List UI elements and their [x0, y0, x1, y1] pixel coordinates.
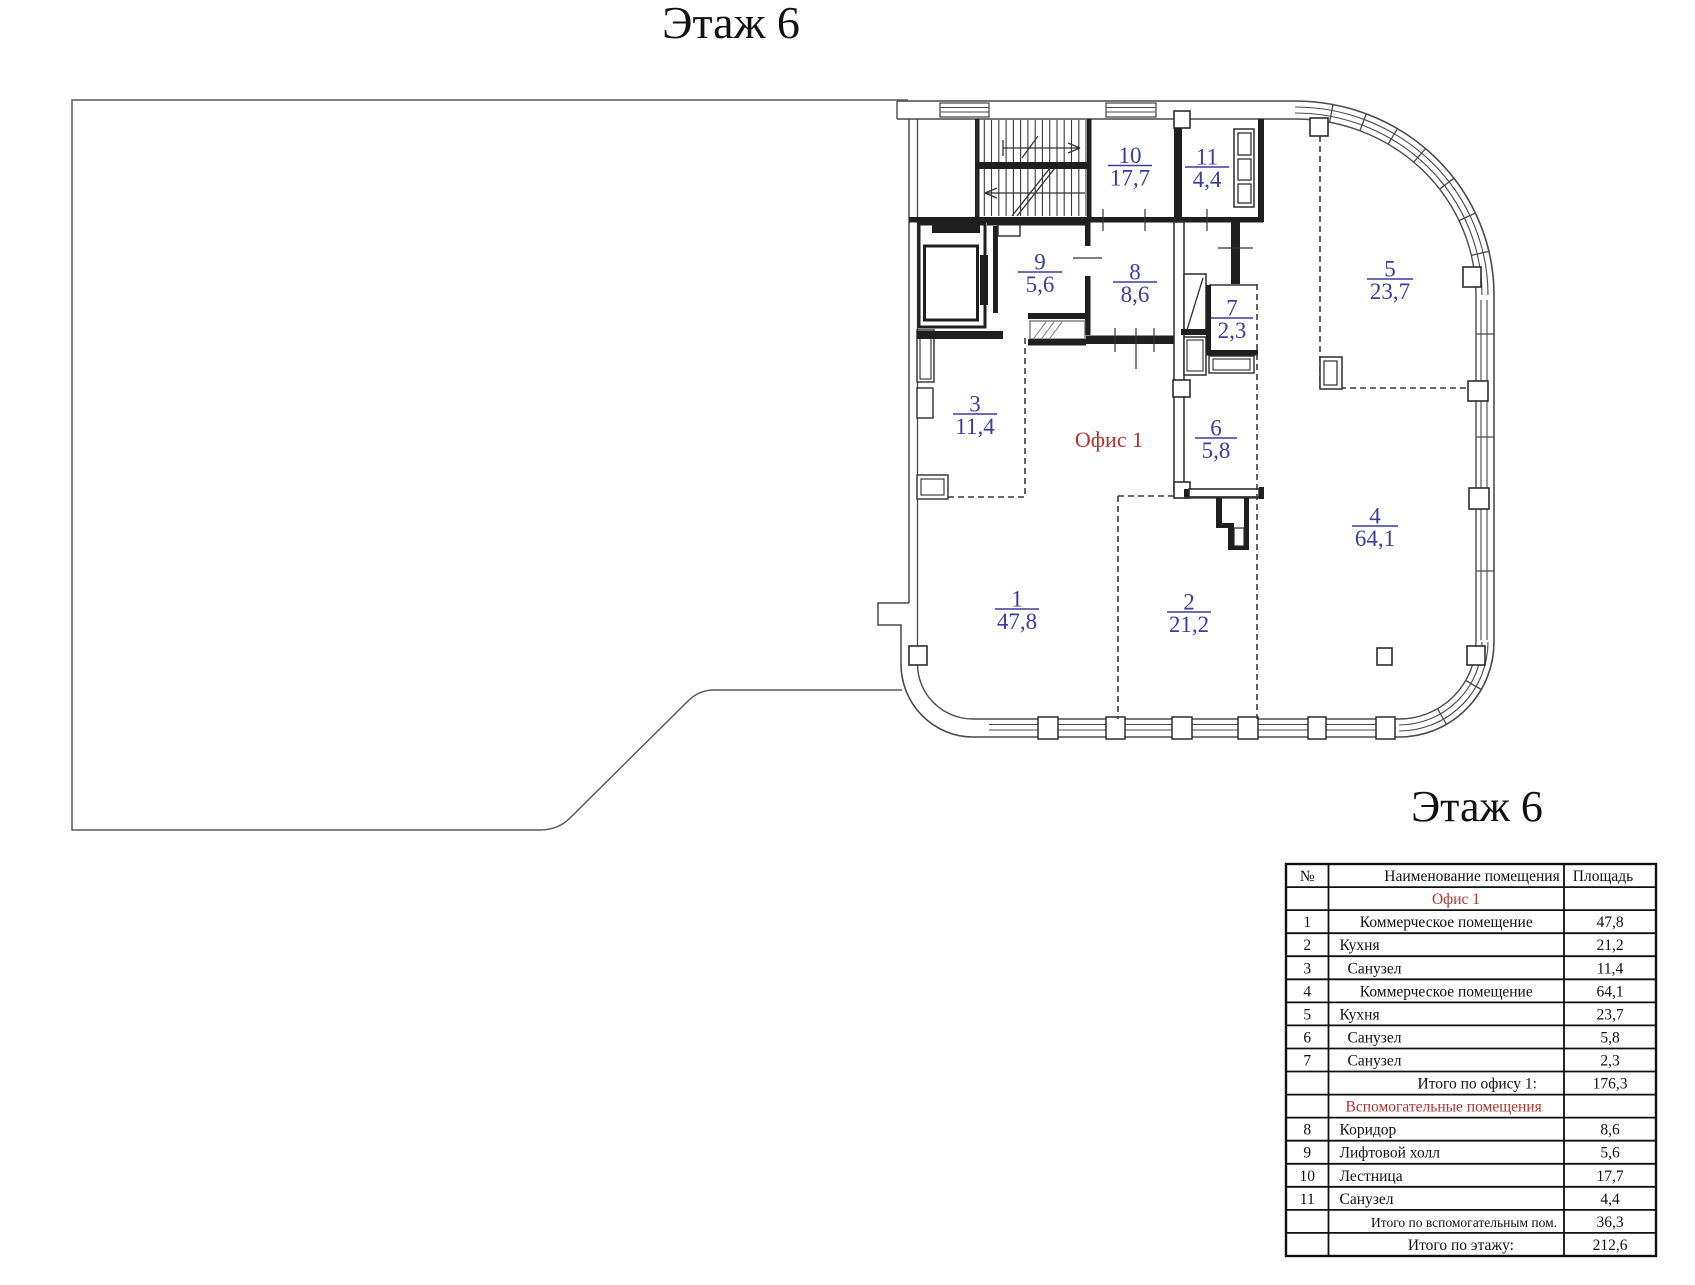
svg-text:17,7: 17,7	[1596, 1168, 1623, 1185]
svg-text:Санузел: Санузел	[1340, 1191, 1394, 1208]
svg-text:10: 10	[1119, 143, 1142, 168]
svg-text:8: 8	[1303, 1122, 1311, 1139]
svg-text:2: 2	[1303, 937, 1311, 954]
svg-text:5,8: 5,8	[1600, 1029, 1620, 1046]
svg-text:1: 1	[1011, 587, 1023, 612]
svg-text:212,6: 212,6	[1593, 1237, 1628, 1254]
svg-text:Офис 1: Офис 1	[1075, 427, 1143, 452]
svg-text:23,7: 23,7	[1596, 1006, 1623, 1023]
svg-text:4,4: 4,4	[1600, 1191, 1620, 1208]
svg-text:2: 2	[1183, 590, 1195, 615]
svg-text:11: 11	[1196, 145, 1218, 170]
svg-text:Санузел: Санузел	[1348, 1053, 1402, 1070]
svg-text:Лифтовой холл: Лифтовой холл	[1340, 1145, 1441, 1162]
svg-text:Кухня: Кухня	[1340, 1006, 1380, 1023]
svg-text:Этаж 6: Этаж 6	[1411, 782, 1543, 831]
svg-text:3: 3	[1303, 960, 1311, 977]
svg-text:9: 9	[1303, 1145, 1311, 1162]
svg-text:5,8: 5,8	[1202, 438, 1231, 463]
svg-text:47,8: 47,8	[997, 609, 1037, 634]
svg-text:8,6: 8,6	[1600, 1122, 1620, 1139]
svg-text:Лестница: Лестница	[1340, 1168, 1403, 1185]
svg-text:64,1: 64,1	[1355, 526, 1395, 551]
svg-text:23,7: 23,7	[1370, 279, 1410, 304]
svg-text:Коридор: Коридор	[1340, 1122, 1397, 1139]
svg-text:9: 9	[1034, 250, 1046, 275]
svg-text:Кухня: Кухня	[1340, 937, 1380, 954]
svg-text:Этаж 6: Этаж 6	[662, 0, 800, 48]
svg-text:2,3: 2,3	[1218, 318, 1247, 343]
svg-text:2,3: 2,3	[1600, 1053, 1620, 1070]
svg-text:21,2: 21,2	[1596, 937, 1623, 954]
svg-text:Офис 1: Офис 1	[1432, 891, 1480, 908]
svg-text:8: 8	[1129, 260, 1141, 285]
svg-text:6: 6	[1303, 1029, 1311, 1046]
svg-text:64,1: 64,1	[1596, 983, 1623, 1000]
svg-text:176,3: 176,3	[1593, 1076, 1628, 1093]
svg-text:7: 7	[1303, 1053, 1311, 1070]
svg-text:4: 4	[1369, 504, 1381, 529]
svg-text:Итого по вспомогательным пом.: Итого по вспомогательным пом.	[1371, 1215, 1557, 1230]
svg-text:5,6: 5,6	[1026, 272, 1055, 297]
svg-text:Итого по этажу:: Итого по этажу:	[1408, 1237, 1514, 1254]
svg-text:№: №	[1300, 868, 1315, 885]
svg-text:Коммерческое помещение: Коммерческое помещение	[1360, 914, 1533, 931]
svg-text:47,8: 47,8	[1596, 914, 1623, 931]
svg-text:11,4: 11,4	[955, 414, 995, 439]
svg-text:5: 5	[1384, 257, 1396, 282]
svg-text:5,6: 5,6	[1600, 1145, 1620, 1162]
svg-text:Наименование помещения: Наименование помещения	[1384, 868, 1559, 885]
svg-text:7: 7	[1226, 296, 1238, 321]
svg-text:5: 5	[1303, 1006, 1311, 1023]
svg-text:6: 6	[1210, 416, 1222, 441]
svg-text:Санузел: Санузел	[1348, 960, 1402, 977]
svg-text:21,2: 21,2	[1169, 612, 1209, 637]
svg-text:8,6: 8,6	[1121, 282, 1150, 307]
svg-text:11,4: 11,4	[1597, 960, 1624, 977]
svg-text:Итого по офису 1:: Итого по офису 1:	[1418, 1076, 1537, 1093]
svg-text:Площадь: Площадь	[1573, 868, 1633, 885]
svg-text:4: 4	[1303, 983, 1311, 1000]
svg-text:1: 1	[1303, 914, 1311, 931]
svg-text:Вспомогательные помещения: Вспомогательные помещения	[1346, 1099, 1542, 1116]
svg-text:11: 11	[1300, 1191, 1315, 1208]
svg-text:3: 3	[969, 392, 981, 417]
svg-text:36,3: 36,3	[1596, 1214, 1623, 1231]
svg-text:Санузел: Санузел	[1348, 1029, 1402, 1046]
svg-text:Коммерческое помещение: Коммерческое помещение	[1360, 983, 1533, 1000]
svg-text:4,4: 4,4	[1193, 167, 1222, 192]
svg-text:17,7: 17,7	[1110, 166, 1150, 191]
svg-text:10: 10	[1300, 1168, 1316, 1185]
